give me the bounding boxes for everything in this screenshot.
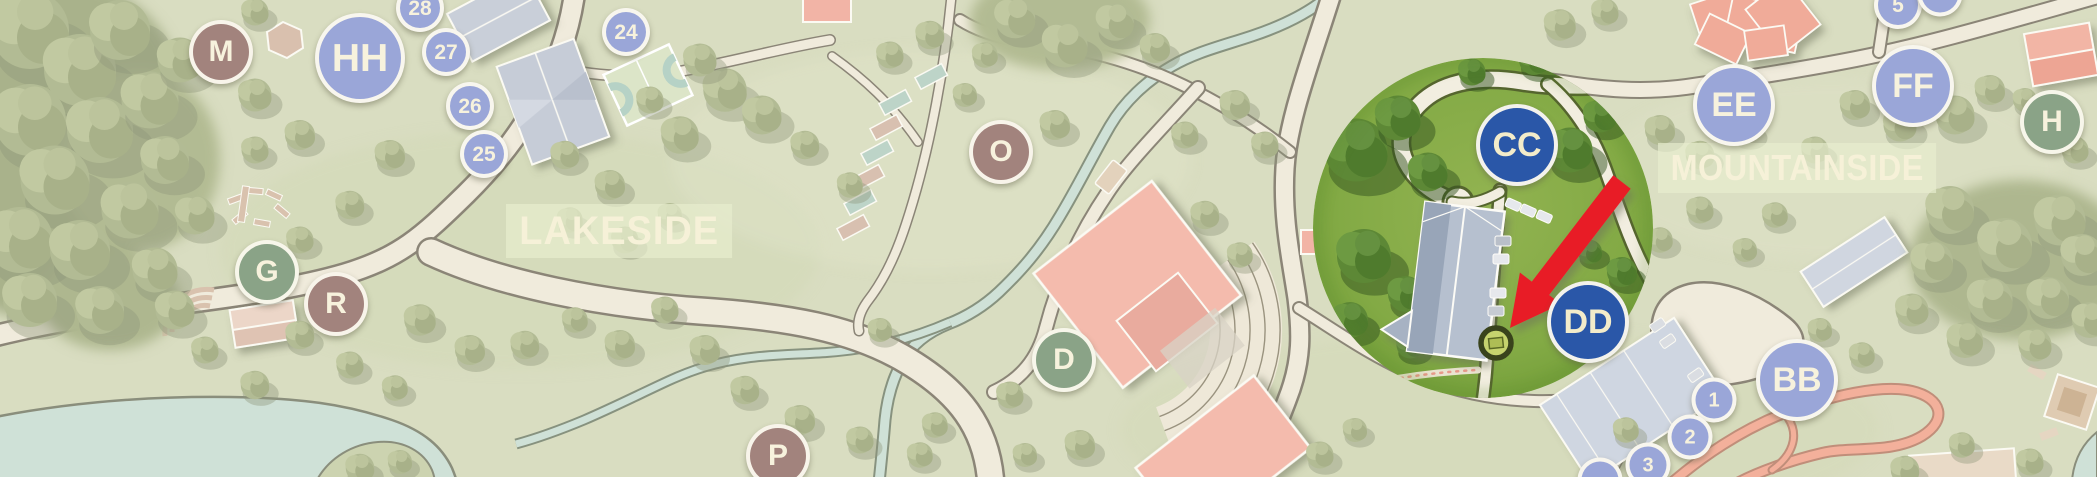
map-marker-25[interactable]: 25	[460, 130, 508, 178]
region-label-lakeside: LAKESIDE	[506, 204, 732, 258]
bunkhouse-building	[2024, 23, 2097, 87]
map-marker-ee[interactable]: EE	[1693, 64, 1775, 146]
map-marker-26[interactable]: 26	[446, 82, 494, 130]
map-marker-2[interactable]: 2	[1668, 415, 1713, 460]
map-marker-cc[interactable]: CC	[1476, 104, 1558, 186]
top-cabin	[803, 0, 851, 22]
destination-ring-icon	[1481, 328, 1511, 358]
map-marker-d[interactable]: D	[1032, 328, 1096, 392]
map-marker-dd[interactable]: DD	[1547, 281, 1629, 363]
campus-map: LAKESIDE MOUNTAINSIDE M HH G R O D P CC …	[0, 0, 2097, 477]
map-marker-m[interactable]: M	[189, 20, 253, 84]
map-marker-o[interactable]: O	[969, 120, 1033, 184]
region-label-mountainside: MOUNTAINSIDE	[1658, 143, 1936, 193]
map-marker-h[interactable]: H	[2020, 90, 2084, 154]
map-marker-hh[interactable]: HH	[315, 13, 405, 103]
map-marker-ff[interactable]: FF	[1872, 45, 1954, 127]
map-marker-bb[interactable]: BB	[1756, 339, 1838, 421]
map-marker-r[interactable]: R	[304, 272, 368, 336]
map-marker-27[interactable]: 27	[422, 28, 470, 76]
map-marker-24[interactable]: 24	[602, 8, 650, 56]
map-marker-g[interactable]: G	[235, 240, 299, 304]
